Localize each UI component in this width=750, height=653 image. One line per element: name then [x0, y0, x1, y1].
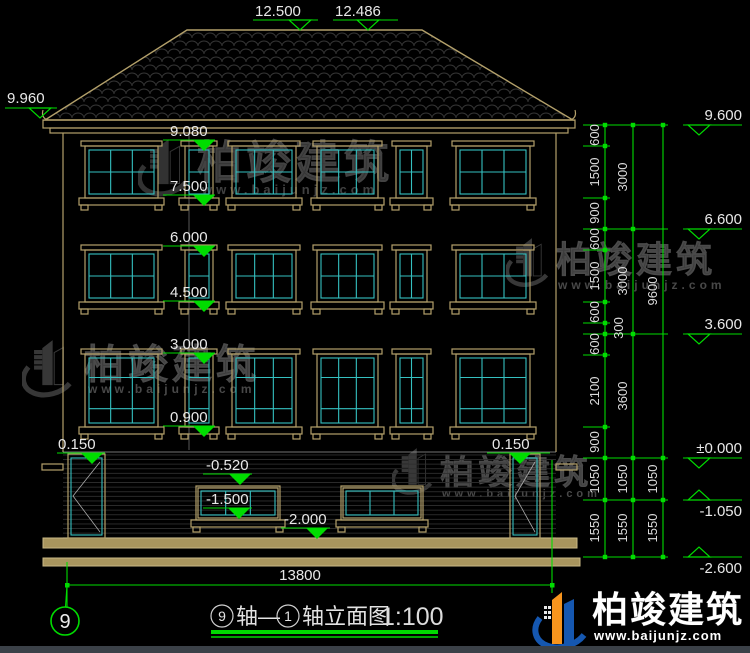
elevation-label: 3.600	[704, 316, 742, 333]
dim-label: 1050	[587, 465, 602, 494]
dim-label: 1050	[615, 465, 630, 494]
dim-label: 3600	[615, 382, 630, 411]
elevation-label: -2.600	[699, 560, 742, 577]
watermark-site: www.baijunjz.com	[201, 182, 378, 197]
elevation-label: 0.150	[492, 436, 530, 453]
elevation-label: -1.050	[699, 503, 742, 520]
overall-width-label: 13800	[279, 567, 321, 584]
elevation-label: -0.520	[206, 457, 249, 474]
watermark-site: www.baijunjz.com	[87, 382, 256, 396]
axis-bubble-label: 9	[59, 611, 70, 633]
dim-label: 300	[611, 317, 626, 339]
elevation-label: -2.000	[284, 511, 327, 528]
dim-label: 1550	[587, 514, 602, 543]
watermark-site: www.baijunjz.com	[557, 278, 726, 292]
dim-label: 600	[587, 228, 602, 250]
elevation-label: 12.500	[255, 3, 301, 20]
elevation-label: 9.080	[170, 123, 208, 140]
dim-label: 3000	[615, 267, 630, 296]
title-scale: 1:100	[381, 603, 444, 631]
dim-label: 900	[587, 431, 602, 453]
dim-label: 1050	[645, 465, 660, 494]
elevation-label: 9.600	[704, 107, 742, 124]
brand-logo-site: www.baijunjz.com	[593, 628, 722, 643]
slab-band-lower	[43, 558, 580, 566]
title-axis-no-1: 1	[284, 608, 292, 624]
logo-building-orange	[552, 592, 562, 644]
elevation-label: 6.600	[704, 211, 742, 228]
dim-label: 9600	[645, 277, 660, 306]
dim-label: 1550	[645, 514, 660, 543]
elevation-label: 9.960	[7, 90, 45, 107]
title-underline	[211, 630, 438, 634]
dim-label: 2100	[587, 377, 602, 406]
elevation-label: 12.486	[335, 3, 381, 20]
logo-building-blue	[564, 599, 574, 644]
dim-label: 1500	[587, 262, 602, 291]
watermark-brand: 柏竣建筑	[197, 137, 393, 188]
cad-elevation-drawing: 柏竣建筑 www.baijunjz.com 柏竣建筑 www.baijunjz.…	[0, 0, 750, 653]
watermark-brand: 柏竣建筑	[556, 239, 716, 280]
elevation-label: 4.500	[170, 284, 208, 301]
elevation-label: 6.000	[170, 229, 208, 246]
dim-label: 1550	[615, 514, 630, 543]
screen-edge-strip	[0, 646, 750, 653]
dim-label: 600	[587, 124, 602, 146]
drawing-canvas: 柏竣建筑 www.baijunjz.com 柏竣建筑 www.baijunjz.…	[0, 0, 750, 653]
dim-label: 1500	[587, 158, 602, 187]
elevation-label: -1.500	[206, 491, 249, 508]
title-text: 轴立面图	[302, 604, 390, 629]
title-axis-no-9: 9	[218, 608, 226, 624]
elevation-label: 3.000	[170, 336, 208, 353]
elevation-label: 0.150	[58, 436, 96, 453]
title-axis-label-start: 轴—	[236, 604, 280, 629]
drawing-title: 9 轴— 1 轴立面图 1:100	[211, 603, 444, 637]
elevation-label: ±0.000	[696, 440, 742, 457]
brand-logo-text: 柏竣建筑	[592, 589, 744, 630]
dim-label: 3000	[615, 163, 630, 192]
dim-label: 600	[587, 301, 602, 323]
dim-label: 600	[587, 333, 602, 355]
elevation-label: 0.900	[170, 409, 208, 426]
elevation-label: 7.500	[170, 178, 208, 195]
slab-band-upper	[43, 538, 577, 548]
dim-label: 900	[587, 202, 602, 224]
